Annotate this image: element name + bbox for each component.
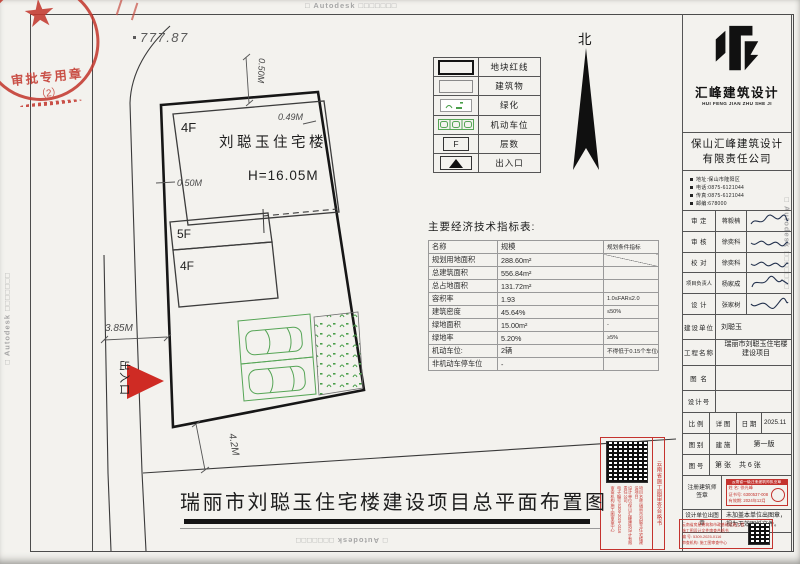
legend-row: F层数: [434, 135, 540, 154]
col-header: 名称: [429, 241, 498, 254]
legend-label: 层数: [479, 135, 540, 153]
table-row: 容积率1.931.0≤FAR≤2.0: [429, 293, 659, 306]
table-row: 非机动车停车位-: [429, 358, 659, 371]
contact-line: 电话:0875-6121044: [696, 184, 744, 191]
entrance-symbol: [440, 156, 472, 170]
legend-label: 机动车位: [479, 116, 540, 134]
review-certificate-band: 云南省房屋建筑和市政基础设施工程 施工图设计文件审查合格书 编 号: 5309-…: [679, 519, 773, 549]
legend-label: 建筑物: [479, 77, 540, 95]
dim-south: 4.2M: [226, 433, 241, 457]
design-no-value: [716, 391, 791, 412]
bullet-icon: [690, 178, 693, 181]
entrance-label: 出入口: [118, 360, 132, 396]
spot-elevation: 777.87: [140, 30, 189, 45]
signature-scribble: [748, 213, 790, 229]
sheet-frame: [31, 15, 794, 552]
table-header-row: 名称规模规划条件指标: [429, 241, 659, 254]
title-block: 汇峰建筑设计 HUI FENG JIAN ZHU SHE JI 保山汇峰建筑设计…: [682, 14, 792, 551]
bullet-icon: [690, 202, 693, 205]
drawing-sheet: 出入口 北 4F 刘聪玉住宅楼 H=16.05M 5F 4F 777.87 0.…: [0, 0, 800, 564]
indicators-title: 主要经济技术指标表:: [428, 219, 660, 234]
design-no-row: 设计号: [683, 391, 791, 413]
owner-row: 建设单位刘聪玉: [683, 315, 791, 340]
parking-stalls: [238, 314, 316, 401]
signature-scribble: [748, 254, 790, 270]
indicators-section: 主要经济技术指标表: 名称规模规划条件指标 规划用地面积288.60m² 总建筑…: [428, 219, 660, 371]
firm-logo-text: 汇峰建筑设计: [695, 82, 779, 101]
bullet-icon: [690, 186, 693, 189]
firm-logo-text-en: HUI FENG JIAN ZHU SHE JI: [702, 101, 772, 106]
dim-top: 0.50M: [256, 58, 267, 84]
table-row: 绿地面积15.00m²-: [429, 319, 659, 332]
legend: 地块红线 建筑物 绿化 机动车位 F层数 出入口: [433, 57, 541, 173]
dim-road: 3.85M: [105, 323, 133, 334]
contact-line: 地址:保山市隆阳区: [696, 176, 740, 183]
owner-value: 刘聪玉: [716, 315, 791, 339]
building-labels: 4F 刘聪玉住宅楼 H=16.05M 5F 4F: [177, 120, 327, 273]
car-icon: [245, 327, 303, 356]
dim-left: 0.50M: [177, 178, 203, 188]
signature-scribble: [748, 275, 790, 291]
drawing-name-row: 图 名: [683, 366, 791, 391]
table-row: 机动车位:2辆不得低于0.15个车位/100m²: [429, 345, 659, 358]
dim-top-right: 0.49M: [278, 112, 304, 122]
autodesk-watermark-top: □ Autodesk □□□□□□□: [305, 1, 397, 10]
legend-row: 出入口: [434, 154, 540, 173]
edition-value: 第一版: [737, 434, 791, 454]
certificate-text: 云南省房屋建筑和市政基础设施工程 施工图设计文件审查合格书 编 号: 5309-…: [680, 520, 748, 548]
parcel-redline-symbol: [438, 60, 474, 75]
floor-label-low: 4F: [180, 259, 194, 273]
legend-label: 绿化: [479, 96, 540, 114]
legend-row: 绿化: [434, 96, 540, 115]
signature-scribble: [748, 296, 790, 312]
firm-logo-cell: 汇峰建筑设计 HUI FENG JIAN ZHU SHE JI: [683, 14, 791, 133]
col-header: 规模: [498, 241, 604, 254]
contact-line: 传真:0875-6121044: [696, 192, 744, 199]
engineer-stamp: 云南省一级注册建筑师执业章 姓 名: 徐光峰 证书号: 6300537-008 …: [726, 479, 788, 506]
table-row: 建筑密度45.64%≤50%: [429, 306, 659, 319]
signature-row: 审 核徐奕科: [683, 232, 791, 253]
table-row: 总占地面积131.72m²: [429, 280, 659, 293]
autodesk-watermark-left: □ Autodesk □□□□□□□: [3, 195, 12, 365]
car-icon: [248, 366, 306, 395]
greenery-symbol: [440, 99, 472, 112]
personal-seal-icon: [771, 488, 785, 502]
greenery-area: [314, 312, 363, 395]
title-underline-thin: [180, 528, 600, 529]
north-label: 北: [578, 32, 592, 47]
signature-row: 设 计张家树: [683, 294, 791, 315]
engineer-seal-row: 注册建筑师签章 云南省一级注册建筑师执业章 姓 名: 徐光峰 证书号: 6300…: [683, 476, 791, 510]
building-name: 刘聪玉住宅楼: [219, 134, 327, 151]
company-name-line: 保山汇峰建筑设计: [691, 137, 783, 151]
seal-label: 注册建筑师签章: [683, 476, 722, 509]
huifeng-logo-icon: [708, 22, 766, 78]
company-contact-cell: 地址:保山市隆阳区 电话:0875-6121044 传真:0875-612104…: [683, 171, 791, 211]
approval-stamp: 审批专用章 （2）: [0, 0, 146, 137]
scale-date-row: 比 例 详 图 日 期 2025.11: [683, 413, 791, 434]
autodesk-watermark-bottom: □ Autodesk □□□□□□□: [295, 536, 387, 545]
legend-label: 出入口: [479, 154, 540, 172]
project-value: 瑞丽市刘聪玉住宅楼建设项目: [716, 340, 791, 365]
signature-row: 审 定蒋毅楠: [683, 211, 791, 232]
category-row: 图 别 建 施 第一版: [683, 434, 791, 455]
indicators-table: 名称规模规划条件指标 规划用地面积288.60m² 总建筑面积556.84m² …: [428, 240, 659, 371]
qr-code: [606, 441, 648, 483]
certificate-title: 云南省施工图审查合格书: [652, 438, 664, 549]
legend-row: 机动车位: [434, 116, 540, 135]
signature-row: 校 对徐奕科: [683, 253, 791, 274]
parking-symbol: [438, 118, 474, 131]
legend-row: 建筑物: [434, 77, 540, 96]
table-row: 规划用地面积288.60m²: [429, 254, 659, 267]
review-certificate-vertical: 项目名称:瑞丽市刘聪玉住宅楼建设项目 设计单位:保山汇峰建筑设计有限责任公司 电…: [600, 437, 665, 550]
legend-row: 地块红线: [434, 58, 540, 77]
certificate-columns: 项目名称:瑞丽市刘聪玉住宅楼建设项目 设计单位:保山汇峰建筑设计有限责任公司 电…: [610, 486, 643, 546]
floor-label-main: 4F: [181, 120, 196, 135]
col-header: 规划条件指标: [604, 241, 659, 254]
company-name-line: 有限责任公司: [703, 152, 772, 166]
triangle-icon: [449, 159, 463, 168]
table-row: 绿地率5.20%≥5%: [429, 332, 659, 345]
signature-row: 项目负责人杨家成: [683, 273, 791, 294]
title-underline: [184, 519, 590, 524]
project-row: 工程名称瑞丽市刘聪玉住宅楼建设项目: [683, 340, 791, 366]
qr-code: [748, 523, 770, 545]
north-arrow-icon: [573, 48, 599, 170]
drawing-title-text: 瑞丽市刘聪玉住宅楼建设项目总平面布置图: [180, 486, 604, 515]
building-height: H=16.05M: [248, 168, 319, 183]
table-row: 总建筑面积556.84m²: [429, 267, 659, 280]
contact-line: 邮编:678000: [696, 200, 727, 207]
entrance-arrow-icon: [127, 364, 164, 399]
date-value: 2025.11: [762, 413, 791, 433]
floors-symbol: F: [443, 137, 469, 151]
company-name-cell: 保山汇峰建筑设计 有限责任公司: [683, 133, 791, 171]
bullet-icon: [690, 194, 693, 197]
drawing-name-value: [716, 366, 791, 390]
legend-label: 地块红线: [479, 58, 540, 76]
signature-scribble: [748, 234, 790, 250]
floor-label-mid: 5F: [177, 227, 191, 241]
building-symbol: [439, 80, 473, 93]
sheet-no-row: 图 号 第 张共 6 张: [683, 455, 791, 476]
drawing-title: 瑞丽市刘聪玉住宅楼建设项目总平面布置图: [180, 486, 604, 529]
